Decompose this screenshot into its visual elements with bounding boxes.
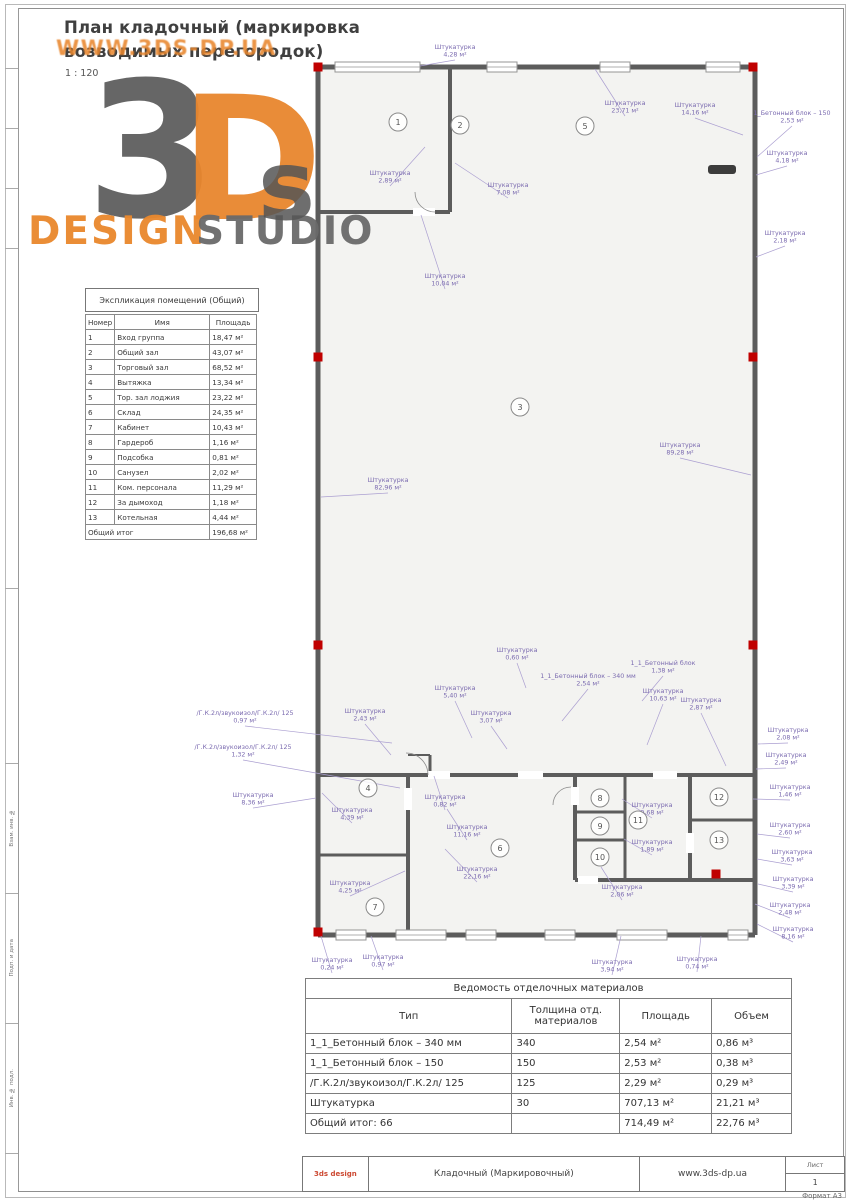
plan-annotation-value: 4,25 м² (338, 888, 362, 895)
plan-annotation-label: Штукатурка (768, 727, 809, 734)
plan-annotation-label: Штукатурка (660, 442, 701, 449)
plan-annotation-value: 0,97 м² (371, 962, 395, 969)
floor-plan: Штукатурка4,28 м²Штукатурка23,71 м²Штука… (180, 35, 850, 975)
red-marker (749, 63, 758, 72)
explication-row: 1Вход группа18,47 м² (86, 330, 257, 345)
materials-total-row: Общий итог: 66714,49 м²22,76 м³ (306, 1114, 792, 1134)
plan-annotation-value: 8,36 м² (241, 800, 265, 807)
explication-cell: Общий зал (115, 345, 210, 360)
red-marker (712, 870, 721, 879)
annotation-leader (756, 246, 785, 257)
explication-cell: 10 (86, 465, 115, 480)
plan-annotation-label: Штукатурка (770, 784, 811, 791)
plan-annotation-value: 2,49 м² (774, 760, 798, 767)
explication-cell: 1 (86, 330, 115, 345)
explication-row: 6Склад24,35 м² (86, 405, 257, 420)
plan-annotation-label: 1_1_Бетонный блок (631, 659, 696, 667)
plan-annotation-value: 8,16 м² (781, 934, 805, 941)
materials-cell: 707,13 м² (620, 1094, 712, 1114)
explication-row: 9Подсобка0,81 м² (86, 450, 257, 465)
door-opening (428, 771, 450, 779)
explication-cell: 5 (86, 390, 115, 405)
plan-annotation-value: 3,94 м² (600, 967, 624, 974)
materials-row: Штукатурка30707,13 м²21,21 м³ (306, 1094, 792, 1114)
explication-row: 7Кабинет10,43 м² (86, 420, 257, 435)
plan-annotation-value: 82,96 м² (374, 485, 402, 492)
plan-annotation-label: Штукатурка (471, 710, 512, 717)
materials-row: 1_1_Бетонный блок – 1501502,53 м²0,38 м³ (306, 1054, 792, 1074)
explication-cell: 6 (86, 405, 115, 420)
plan-annotation-label: Штукатурка (592, 959, 633, 966)
materials-cell: 714,49 м² (620, 1114, 712, 1134)
plan-annotation-label: Штукатурка (605, 100, 646, 107)
explication-cell: 11,29 м² (210, 480, 257, 495)
door-opening (578, 876, 598, 884)
plan-annotation-label: Штукатурка (370, 170, 411, 177)
materials-cell: 150 (512, 1054, 620, 1074)
explication-total-cell: Общий итог (86, 525, 210, 540)
materials-cell (512, 1114, 620, 1134)
plan-annotation-value: 11,16 м² (453, 832, 481, 839)
plan-annotation-value: 2,87 м² (689, 705, 713, 712)
plan-annotation-label: Штукатурка (773, 876, 814, 883)
annotation-leader (758, 743, 788, 744)
explication-row: 5Тор. зал лоджия23,22 м² (86, 390, 257, 405)
plan-annotation-value: 22,16 м² (463, 874, 491, 881)
room-number: 12 (714, 793, 724, 802)
explication-cell: 18,47 м² (210, 330, 257, 345)
plan-annotation-value: 2,60 м² (778, 830, 802, 837)
plan-annotation-value: 14,16 м² (681, 110, 709, 117)
plan-annotation-value: 0,74 м² (685, 964, 709, 971)
explication-cell: 2,02 м² (210, 465, 257, 480)
plan-annotation-value: 1,46 м² (778, 792, 802, 799)
explication-cell: Гардероб (115, 435, 210, 450)
materials-cell: 1_1_Бетонный блок – 150 (306, 1054, 512, 1074)
materials-cell: /Г.К.2л/звукоизол/Г.К.2л/ 125 (306, 1074, 512, 1094)
annotation-leader (756, 768, 786, 769)
materials-cell: 30 (512, 1094, 620, 1114)
explication-cell: 4 (86, 375, 115, 390)
plan-annotation-value: 1,89 м² (640, 847, 664, 854)
door-opening (404, 788, 412, 810)
red-marker (314, 63, 323, 72)
explication-cell: 7 (86, 420, 115, 435)
plan-annotation-value: 2,89 м² (378, 178, 402, 185)
stamp-cell: Взам. инв. № (5, 763, 18, 893)
plan-annotation-label: Штукатурка (233, 792, 274, 799)
plan-annotation-label: 1_1_Бетонный блок – 340 мм (540, 672, 636, 680)
explication-cell: За дымоход (115, 495, 210, 510)
explication-row: 12За дымоход1,18 м² (86, 495, 257, 510)
plan-annotation-value: 2,54 м² (576, 681, 600, 688)
plan-annotation-label: Штукатурка (332, 807, 373, 814)
plan-annotation-value: 10,63 м² (649, 696, 677, 703)
view-scale: 1 : 120 (65, 68, 98, 79)
explication-cell: 4,44 м² (210, 510, 257, 525)
plan-annotation-label: Штукатурка (772, 849, 813, 856)
materials-cell: 0,86 м³ (712, 1034, 792, 1054)
plan-annotation-value: 2,08 м² (776, 735, 800, 742)
plan-annotation-label: Штукатурка (312, 957, 353, 964)
explication-cell: 1,16 м² (210, 435, 257, 450)
plan-annotation-label: Штукатурка (770, 902, 811, 909)
materials-cell: 2,29 м² (620, 1074, 712, 1094)
explication-cell: Вход группа (115, 330, 210, 345)
materials-cell: 2,54 м² (620, 1034, 712, 1054)
view-title-line2: возводимых перегородок) (64, 42, 324, 61)
plan-annotation-label: Штукатурка (457, 866, 498, 873)
explication-cell: Санузел (115, 465, 210, 480)
plan-annotation-value: 4,39 м² (340, 815, 364, 822)
plan-annotation-label: Штукатурка (766, 752, 807, 759)
plan-annotation-label: Штукатурка (773, 926, 814, 933)
materials-cell: 21,21 м³ (712, 1094, 792, 1114)
plan-annotation-value: 2,18 м² (773, 238, 797, 245)
annotation-leader (753, 799, 790, 800)
plan-annotation-value: 5,40 м² (443, 693, 467, 700)
plan-annotation-label: Штукатурка (602, 884, 643, 891)
explication-cell: 43,07 м² (210, 345, 257, 360)
plan-annotation-label: Штукатурка (425, 794, 466, 801)
format-label: Формат А3 (802, 1192, 842, 1200)
explication-cell: 1,18 м² (210, 495, 257, 510)
materials-cell: 0,38 м³ (712, 1054, 792, 1074)
explication-row: 3Торговый зал68,52 м² (86, 360, 257, 375)
explication-total-cell: 196,68 м² (210, 525, 257, 540)
explication-cell: Подсобка (115, 450, 210, 465)
plan-annotation-label: Штукатурка (497, 647, 538, 654)
plan-annotation-label: Штукатурка (425, 273, 466, 280)
materials-row: 1_1_Бетонный блок – 340 мм3402,54 м²0,86… (306, 1034, 792, 1054)
red-marker (749, 353, 758, 362)
materials-cell: 2,53 м² (620, 1054, 712, 1074)
explication-cell: 23,22 м² (210, 390, 257, 405)
title-block-brand: 3ds design (303, 1157, 369, 1191)
explication-cell: Кабинет (115, 420, 210, 435)
stamp-cell: Подп. и дата (5, 893, 18, 1023)
explication-cell: 68,52 м² (210, 360, 257, 375)
materials-cell: Общий итог: 66 (306, 1114, 512, 1134)
explication-column-header: Площадь (210, 315, 257, 330)
plan-annotation-label: Штукатурка (488, 182, 529, 189)
red-marker (314, 928, 323, 937)
plan-annotation-label: Штукатурка (681, 697, 722, 704)
plan-annotation-label: Штукатурка (632, 839, 673, 846)
red-marker (314, 641, 323, 650)
explication-row: 4Вытяжка13,34 м² (86, 375, 257, 390)
plan-annotation-value: 1,32 м² (231, 752, 255, 759)
red-marker (314, 353, 323, 362)
annotation-leader (756, 166, 787, 175)
plan-annotation-value: 0,82 м² (433, 802, 457, 809)
plan-annotation-value: 1,38 м² (651, 668, 675, 675)
door-opening (686, 833, 694, 853)
materials-cell: 0,29 м³ (712, 1074, 792, 1094)
plan-annotation-value: 4,18 м² (775, 158, 799, 165)
plan-annotation-label: Штукатурка (330, 880, 371, 887)
plan-annotation-label: Штукатурка (765, 230, 806, 237)
room-number: 10 (595, 853, 605, 862)
plan-annotation-label: Штукатурка (767, 150, 808, 157)
explication-cell: 13 (86, 510, 115, 525)
plan-annotation-label: 1_Бетонный блок – 150 (754, 109, 831, 117)
sheet-label: Лист (786, 1157, 844, 1174)
plan-annotation-value: 0,60 м² (505, 655, 529, 662)
materials-cell: 125 (512, 1074, 620, 1094)
materials-row: /Г.К.2л/звукоизол/Г.К.2л/ 1251252,29 м²0… (306, 1074, 792, 1094)
materials-title: Ведомость отделочных материалов (306, 979, 792, 999)
materials-cell: 1_1_Бетонный блок – 340 мм (306, 1034, 512, 1054)
title-block: 3ds design Кладочный (Маркировочный) www… (302, 1156, 845, 1192)
explication-cell: 24,35 м² (210, 405, 257, 420)
explication-row: 8Гардероб1,16 м² (86, 435, 257, 450)
materials-column-header: Площадь (620, 999, 712, 1034)
explication-row: 13Котельная4,44 м² (86, 510, 257, 525)
plan-annotation-value: 2,53 м² (780, 118, 804, 125)
explication-cell: Тор. зал лоджия (115, 390, 210, 405)
plan-annotation-label: /Г.К.2л/звукоизол/Г.К.2л/ 125 (195, 744, 292, 751)
room-number: 2 (457, 121, 462, 130)
explication-total-row: Общий итог196,68 м² (86, 525, 257, 540)
explication-cell: Котельная (115, 510, 210, 525)
materials-cell: 340 (512, 1034, 620, 1054)
left-stamp-strip: Взам. инв. №Подп. и датаИнв. № подл. (5, 8, 19, 1190)
title-block-doc-name: Кладочный (Маркировочный) (369, 1157, 640, 1191)
explication-cell: 12 (86, 495, 115, 510)
explication-cell: 3 (86, 360, 115, 375)
explication-column-header: Номер (86, 315, 115, 330)
materials-cell: 22,76 м³ (712, 1114, 792, 1134)
plan-annotation-value: 3,07 м² (479, 718, 503, 725)
plan-annotation-label: Штукатурка (363, 954, 404, 961)
plan-annotation-value: 0,97 м² (233, 718, 257, 725)
plan-annotation-value: 4,28 м² (443, 52, 467, 59)
room-number: 6 (497, 844, 502, 853)
materials-column-header: Тип (306, 999, 512, 1034)
plan-annotation-label: Штукатурка (632, 802, 673, 809)
explication-cell: Торговый зал (115, 360, 210, 375)
materials-column-header: Толщина отд. материалов (512, 999, 620, 1034)
explication-row: 2Общий зал43,07 м² (86, 345, 257, 360)
door-opening (518, 771, 543, 779)
materials-column-header: Объем (712, 999, 792, 1034)
plan-annotation-label: Штукатурка (368, 477, 409, 484)
door-opening (571, 787, 579, 805)
explication-row: 10Санузел2,02 м² (86, 465, 257, 480)
plan-annotation-value: 89,28 м² (666, 450, 694, 457)
drawing-sheet: Взам. инв. №Подп. и датаИнв. № подл. Шту… (0, 0, 850, 1200)
plan-annotation-value: 0,24 м² (320, 965, 344, 972)
explication-cell: Вытяжка (115, 375, 210, 390)
explication-column-header: Имя (115, 315, 210, 330)
explication-cell: 10,43 м² (210, 420, 257, 435)
materials-cell: Штукатурка (306, 1094, 512, 1114)
room-number: 9 (597, 822, 602, 831)
plan-annotation-value: 3,39 м² (781, 884, 805, 891)
radiator (708, 165, 736, 174)
explication-cell: 0,81 м² (210, 450, 257, 465)
plan-annotation-label: Штукатурка (677, 956, 718, 963)
stamp-cell: Инв. № подл. (5, 1023, 18, 1153)
plan-annotation-value: 23,71 м² (611, 108, 639, 115)
view-title-line1: План кладочный (маркировка (64, 18, 360, 37)
title-block-sheet: Лист 1 (786, 1157, 844, 1191)
explication-cell: 9 (86, 450, 115, 465)
room-number: 13 (714, 836, 724, 845)
room-number: 8 (597, 794, 602, 803)
explication-cell: 2 (86, 345, 115, 360)
plan-annotation-label: Штукатурка (675, 102, 716, 109)
plan-annotation-label: Штукатурка (435, 685, 476, 692)
plan-annotation-label: Штукатурка (643, 688, 684, 695)
plan-annotation-value: 10,04 м² (431, 281, 459, 288)
explication-title: Экспликация помещений (Общий) (85, 288, 259, 312)
plan-annotation-value: 2,48 м² (778, 910, 802, 917)
plan-annotation-label: Штукатурка (770, 822, 811, 829)
red-marker (749, 641, 758, 650)
explication-cell: 13,34 м² (210, 375, 257, 390)
plan-annotation-label: Штукатурка (447, 824, 488, 831)
room-number: 5 (582, 122, 587, 131)
room-number: 11 (633, 816, 643, 825)
materials-table: Ведомость отделочных материалов ТипТолщи… (305, 978, 792, 1134)
explication-cell: 11 (86, 480, 115, 495)
explication-cell: Ком. персонала (115, 480, 210, 495)
plan-annotation-label: /Г.К.2л/звукоизол/Г.К.2л/ 125 (197, 710, 294, 717)
explication-table: НомерИмяПлощадь1Вход группа18,47 м²2Общи… (85, 314, 257, 540)
explication-row: 11Ком. персонала11,29 м² (86, 480, 257, 495)
door-opening (653, 771, 677, 779)
sheet-number: 1 (813, 1174, 818, 1191)
explication-cell: 8 (86, 435, 115, 450)
title-block-site: www.3ds-dp.ua (640, 1157, 786, 1191)
plan-annotation-value: 7,08 м² (496, 190, 520, 197)
plan-annotation-value: 2,43 м² (353, 716, 377, 723)
plan-annotation-label: Штукатурка (435, 44, 476, 51)
plan-annotation-value: 2,06 м² (610, 892, 634, 899)
room-number: 1 (395, 118, 400, 127)
plan-annotation-value: 3,63 м² (780, 857, 804, 864)
room-number: 7 (372, 903, 377, 912)
room-number: 3 (517, 403, 522, 412)
plan-annotation-label: Штукатурка (345, 708, 386, 715)
explication-cell: Склад (115, 405, 210, 420)
room-number: 4 (365, 784, 370, 793)
